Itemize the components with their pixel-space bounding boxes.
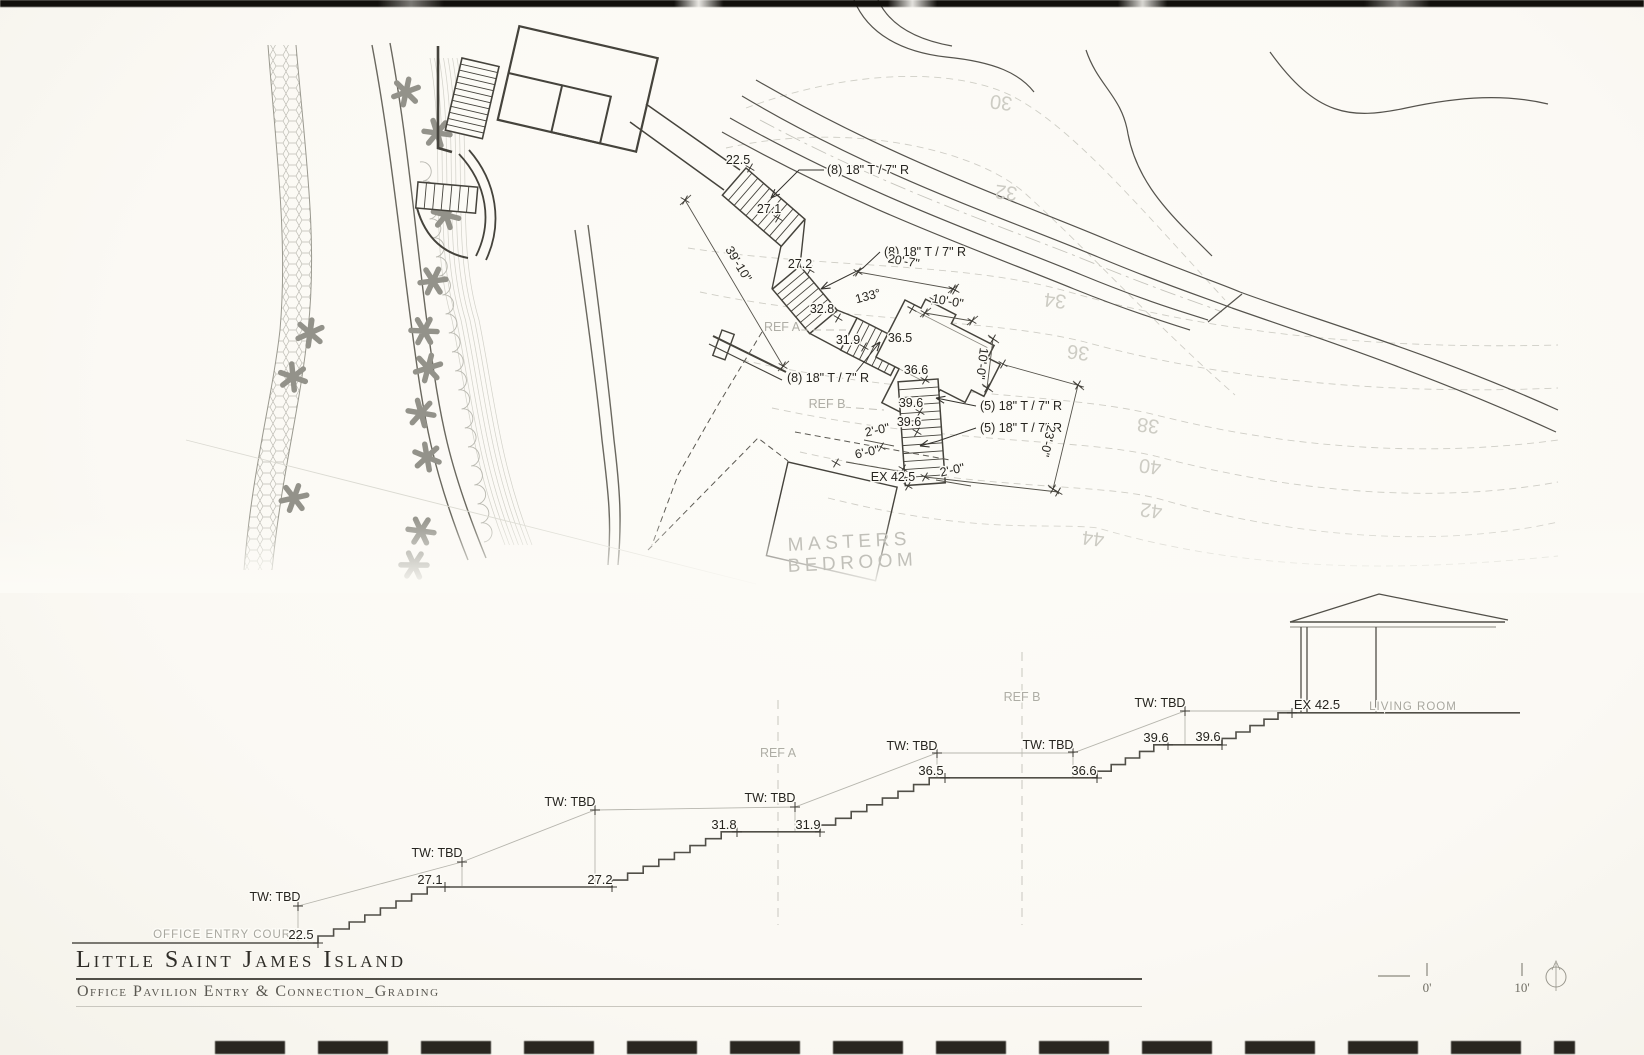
plan-annotation: 27.2 [788, 257, 812, 271]
scan-edge-top [0, 0, 1644, 7]
plan-ref-labels: REF AREF B [764, 320, 845, 411]
room-label: MASTERSBEDROOM [787, 529, 918, 577]
plan-annotation: 133° [854, 286, 883, 306]
spot-elevation: 27.2 [587, 872, 612, 887]
site-paths [722, 0, 1558, 432]
contour-label: 32 [994, 180, 1019, 205]
plan-annotation: 27.1 [757, 202, 781, 216]
drawing-sheet: 3032343638404244 MASTERSBEDROOM REF AREF… [0, 0, 1644, 1055]
tw-label: TW: TBD [1023, 738, 1074, 752]
tw-label: TW: TBD [545, 795, 596, 809]
spot-elevation: 36.6 [1071, 763, 1096, 778]
plan-annotation: 2'-0" [864, 421, 891, 440]
tw-label: TW: TBD [412, 846, 463, 860]
ref-label: REF B [1004, 690, 1041, 704]
scan-edge-bottom [215, 1041, 1575, 1054]
tw-label: TW: TBD [1135, 696, 1186, 710]
plan-annotation: 39.6 [897, 415, 921, 429]
spot-elevation: 39.6 [1143, 730, 1168, 745]
contour-label: 30 [989, 90, 1014, 115]
plan-annotation: (8) 18" T / 7" R [787, 371, 869, 385]
spot-elevation: 31.9 [795, 817, 820, 832]
ref-label: REF B [809, 397, 846, 411]
tw-label: TW: TBD [745, 791, 796, 805]
scale-label: 10' [1514, 980, 1529, 995]
area-label: OFFICE ENTRY COURT [153, 929, 299, 941]
pavilion-section [1290, 594, 1508, 713]
plan-annotation: 39'-10" [722, 244, 754, 284]
section-tw-labels: TW: TBDTW: TBDTW: TBDTW: TBDTW: TBDTW: T… [250, 696, 1186, 904]
tw-label: TW: TBD [887, 739, 938, 753]
contour-label: 40 [1138, 454, 1163, 479]
plan-annotation: 31.9 [836, 333, 860, 347]
plan-annotation: (5) 18" T / 7" R [980, 399, 1062, 413]
subtitle-rule [76, 1006, 1142, 1007]
section-ref-lines [778, 652, 1022, 925]
plan-annotation: (8) 18" T / 7" R [827, 163, 909, 177]
spot-elevation: 36.5 [918, 763, 943, 778]
stone-path [244, 45, 312, 570]
plan-annotation: 22.5 [726, 153, 750, 167]
sheet-subtitle: Office Pavilion Entry & Connection_Gradi… [77, 983, 440, 1001]
plan-annotation: EX 42.5 [871, 470, 916, 484]
ref-label: REF A [764, 320, 801, 334]
spot-elevation: 31.8 [711, 817, 736, 832]
sheet-title: Little Saint James Island [76, 947, 406, 974]
scale-labels: 0'10' [1423, 980, 1530, 995]
contour-label: 44 [1081, 526, 1106, 551]
contour-labels: 3032343638404244 [989, 90, 1164, 551]
ref-label: REF A [760, 746, 797, 760]
stair-walkway [709, 168, 1011, 486]
plan-annotation: 32.8 [810, 302, 834, 316]
tw-label: TW: TBD [250, 890, 301, 904]
plan-annotation: 6'-0" [854, 443, 881, 462]
area-label: LIVING ROOM [1369, 701, 1457, 713]
plan-annotation: 39.6 [899, 396, 923, 410]
spot-elevation: 39.6 [1195, 729, 1220, 744]
section-spot-elevations: 22.527.127.231.831.936.536.639.639.6EX 4… [288, 697, 1340, 942]
contour-label: 38 [1136, 413, 1161, 438]
title-rule [76, 978, 1142, 980]
spot-elevation: EX 42.5 [1294, 697, 1340, 712]
drawing-canvas: 3032343638404244 MASTERSBEDROOM REF AREF… [0, 0, 1644, 1055]
spot-elevation: 27.1 [417, 872, 442, 887]
scale-label: 0' [1423, 980, 1432, 995]
contour-label: 42 [1139, 498, 1164, 523]
plan-annotation: 36.5 [888, 331, 912, 345]
road-centerline [760, 120, 1222, 312]
garden-path-edges [372, 43, 620, 565]
contour-label: 36 [1066, 340, 1091, 365]
scale-bar [1378, 961, 1566, 991]
spot-elevation: 22.5 [288, 927, 313, 942]
contour-label: 34 [1043, 288, 1068, 313]
plan-annotation: 36.6 [904, 363, 928, 377]
